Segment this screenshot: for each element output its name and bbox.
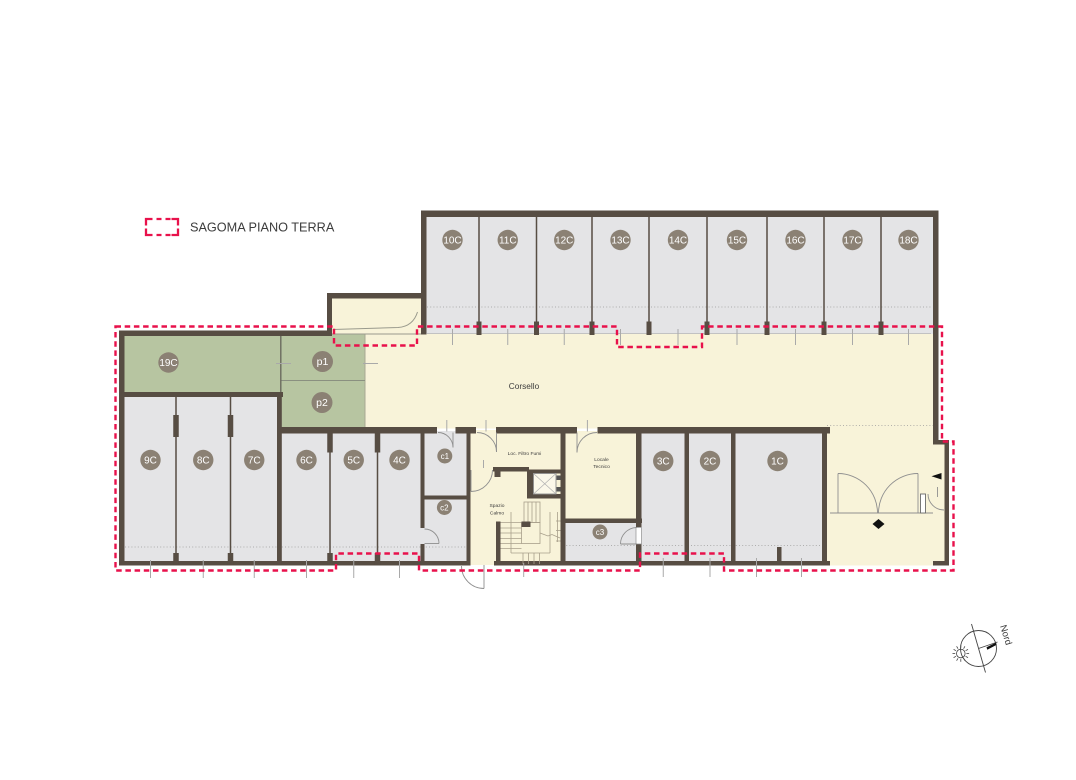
svg-text:13C: 13C xyxy=(611,236,629,247)
svg-text:Spazio: Spazio xyxy=(490,503,505,509)
svg-text:8C: 8C xyxy=(197,456,210,467)
svg-text:c1: c1 xyxy=(441,452,450,461)
svg-text:Calmo: Calmo xyxy=(490,511,504,517)
svg-text:19C: 19C xyxy=(159,358,177,369)
svg-text:15C: 15C xyxy=(728,236,746,247)
svg-text:18C: 18C xyxy=(899,236,917,247)
svg-text:5C: 5C xyxy=(347,456,360,467)
svg-text:Tecnico: Tecnico xyxy=(593,464,610,470)
svg-text:16C: 16C xyxy=(786,236,804,247)
svg-text:4C: 4C xyxy=(393,456,406,467)
svg-text:6C: 6C xyxy=(300,456,313,467)
svg-text:9C: 9C xyxy=(144,456,157,467)
svg-text:Loc. Filtro Fumi: Loc. Filtro Fumi xyxy=(508,451,542,457)
svg-text:2C: 2C xyxy=(704,457,717,468)
svg-text:14C: 14C xyxy=(669,236,687,247)
svg-text:17C: 17C xyxy=(843,236,861,247)
svg-text:p1: p1 xyxy=(317,356,329,368)
svg-text:12C: 12C xyxy=(555,236,573,247)
svg-text:11C: 11C xyxy=(499,236,517,247)
svg-text:1C: 1C xyxy=(771,457,784,468)
svg-text:Nord: Nord xyxy=(997,624,1014,647)
svg-text:Locale: Locale xyxy=(594,457,609,463)
svg-text:7C: 7C xyxy=(248,456,261,467)
svg-text:c3: c3 xyxy=(596,528,605,537)
svg-text:Corsello: Corsello xyxy=(509,381,540,391)
svg-text:p2: p2 xyxy=(316,397,328,409)
svg-text:c2: c2 xyxy=(440,503,449,512)
svg-text:SAGOMA PIANO TERRA: SAGOMA PIANO TERRA xyxy=(190,221,335,235)
svg-text:10C: 10C xyxy=(443,236,461,247)
svg-text:3C: 3C xyxy=(657,457,670,468)
